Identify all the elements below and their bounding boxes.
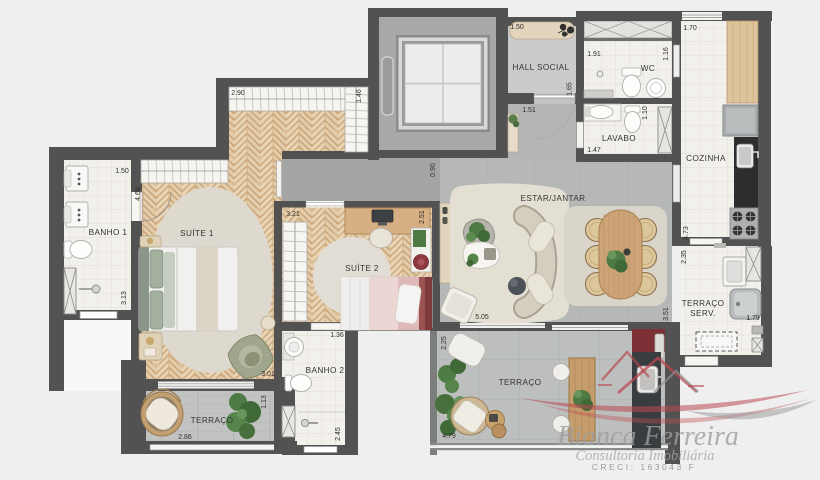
svg-text:COZINHA: COZINHA xyxy=(686,154,726,163)
svg-text:1.13: 1.13 xyxy=(261,395,268,409)
svg-text:CRECI: 163043 F: CRECI: 163043 F xyxy=(592,462,697,472)
svg-text:3.13: 3.13 xyxy=(121,291,128,305)
svg-text:1.65: 1.65 xyxy=(567,82,574,96)
svg-text:1.51: 1.51 xyxy=(522,107,536,114)
svg-text:4.73: 4.73 xyxy=(683,226,690,240)
svg-text:1.46: 1.46 xyxy=(356,89,363,103)
svg-text:2.45: 2.45 xyxy=(335,427,342,441)
svg-text:1.36: 1.36 xyxy=(330,332,344,339)
svg-text:1.47: 1.47 xyxy=(587,147,601,154)
svg-text:2.25: 2.25 xyxy=(441,336,448,350)
svg-text:3.01: 3.01 xyxy=(261,371,275,378)
svg-text:BANHO 2: BANHO 2 xyxy=(306,366,345,375)
svg-text:3.51: 3.51 xyxy=(663,307,670,321)
svg-text:SUÍTE 1: SUÍTE 1 xyxy=(180,228,214,238)
svg-text:TERRAÇO: TERRAÇO xyxy=(191,416,234,425)
svg-text:SUÍTE 2: SUÍTE 2 xyxy=(345,263,379,273)
svg-text:0.90: 0.90 xyxy=(430,163,437,177)
svg-text:ESTAR/JANTAR: ESTAR/JANTAR xyxy=(521,194,586,203)
svg-text:SERV.: SERV. xyxy=(690,309,716,318)
svg-text:1.91: 1.91 xyxy=(587,51,601,58)
svg-text:4.68: 4.68 xyxy=(135,187,142,201)
svg-text:2.90: 2.90 xyxy=(231,90,245,97)
svg-text:2.35: 2.35 xyxy=(681,250,688,264)
svg-text:1.10: 1.10 xyxy=(642,106,649,120)
svg-text:1.16: 1.16 xyxy=(663,47,670,61)
svg-text:1.70: 1.70 xyxy=(683,25,697,32)
svg-text:1.79: 1.79 xyxy=(746,315,760,322)
svg-text:WC: WC xyxy=(641,64,655,73)
svg-text:2.51: 2.51 xyxy=(419,210,426,224)
svg-text:HALL SOCIAL: HALL SOCIAL xyxy=(513,63,570,72)
svg-text:1.50: 1.50 xyxy=(510,24,524,31)
svg-text:TERRAÇO: TERRAÇO xyxy=(499,378,542,387)
svg-text:3.21: 3.21 xyxy=(286,211,300,218)
svg-text:1.50: 1.50 xyxy=(115,168,129,175)
svg-text:2.86: 2.86 xyxy=(178,434,192,441)
svg-text:TERRAÇO: TERRAÇO xyxy=(682,299,725,308)
svg-text:LAVABO: LAVABO xyxy=(602,134,636,143)
svg-text:4.79: 4.79 xyxy=(442,433,456,440)
svg-text:BANHO 1: BANHO 1 xyxy=(89,228,128,237)
svg-text:5.05: 5.05 xyxy=(475,314,489,321)
